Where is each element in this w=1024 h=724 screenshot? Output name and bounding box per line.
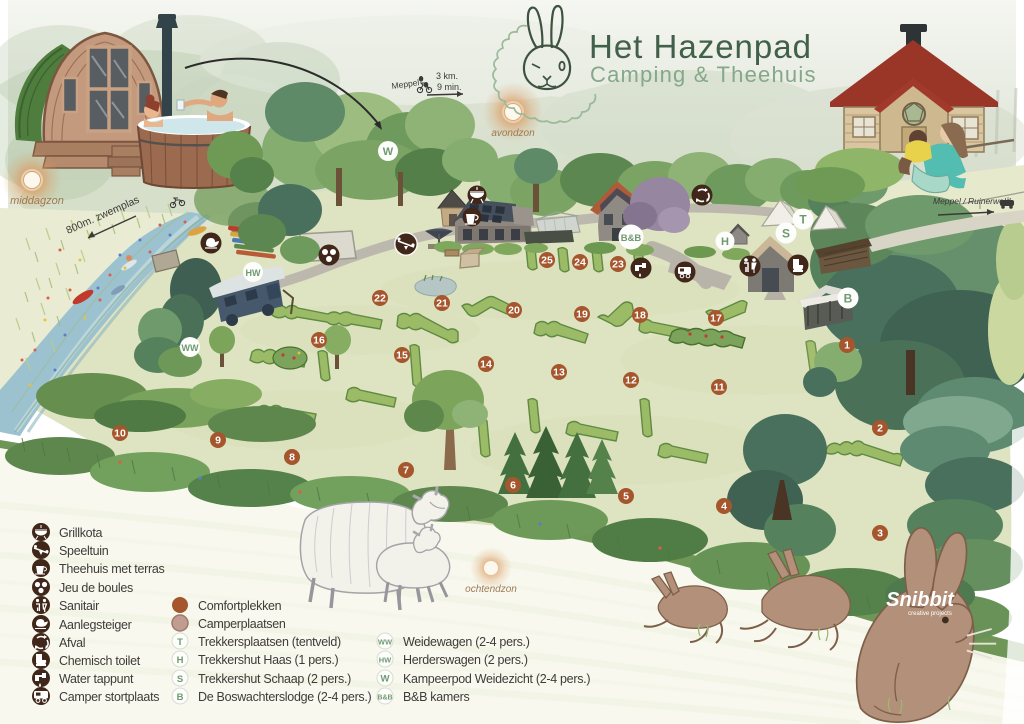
svg-text:17: 17 [710,313,722,325]
svg-text:12: 12 [625,375,637,387]
svg-text:9 min.: 9 min. [437,82,462,92]
svg-text:19: 19 [576,309,588,321]
svg-text:14: 14 [480,359,492,371]
svg-text:B: B [177,692,184,703]
svg-text:W: W [383,146,394,158]
svg-text:middagzon: middagzon [10,195,64,207]
svg-text:Trekkershut Schaap (2 pers.): Trekkershut Schaap (2 pers.) [198,672,351,686]
svg-text:21: 21 [436,298,448,310]
svg-text:8: 8 [289,452,295,464]
svg-text:18: 18 [634,310,646,322]
svg-text:2: 2 [877,423,883,435]
svg-text:6: 6 [510,480,516,492]
svg-text:4: 4 [721,501,727,513]
svg-text:Camper stortplaats: Camper stortplaats [59,690,159,704]
svg-text:avondzon: avondzon [491,128,535,139]
svg-text:HW: HW [246,268,261,278]
svg-text:20: 20 [508,305,520,317]
svg-text:13: 13 [553,367,565,379]
svg-text:WW: WW [378,638,393,647]
svg-text:10: 10 [114,428,126,440]
svg-text:Weidewagen (2-4 pers.): Weidewagen (2-4 pers.) [403,635,530,649]
svg-text:Sanitair: Sanitair [59,599,99,613]
svg-text:5: 5 [623,491,629,503]
svg-text:3 km.: 3 km. [436,71,458,81]
svg-text:Herderswagen (2 pers.): Herderswagen (2 pers.) [403,653,528,667]
svg-text:Trekkershut Haas (1 pers.): Trekkershut Haas (1 pers.) [198,653,339,667]
svg-text:T: T [177,637,183,648]
svg-text:B&B: B&B [377,695,392,702]
svg-text:Camperplaatsen: Camperplaatsen [198,617,286,631]
svg-text:Kampeerpod Weidezicht (2-4 per: Kampeerpod Weidezicht (2-4 pers.) [403,672,590,686]
svg-text:W: W [381,674,390,685]
svg-text:Snibbit: Snibbit [886,589,955,611]
svg-text:22: 22 [374,293,386,305]
svg-text:Afval: Afval [59,636,85,650]
svg-text:S: S [782,227,790,241]
svg-text:Trekkersplaatsen (tentveld): Trekkersplaatsen (tentveld) [198,635,341,649]
svg-text:S: S [177,674,183,685]
svg-text:H: H [721,236,729,248]
svg-text:3: 3 [877,528,883,540]
svg-text:B: B [844,292,853,306]
svg-text:ochtendzon: ochtendzon [465,584,517,595]
svg-text:11: 11 [713,382,724,394]
svg-text:7: 7 [403,465,409,477]
svg-text:B&B kamers: B&B kamers [403,690,470,704]
svg-text:16: 16 [313,335,325,347]
svg-text:Theehuis met terras: Theehuis met terras [59,562,165,576]
svg-text:WW: WW [182,343,199,353]
svg-text:Jeu de boules: Jeu de boules [59,581,133,595]
svg-text:15: 15 [396,350,408,362]
svg-text:Aanlegsteiger: Aanlegsteiger [59,618,132,632]
svg-text:Water tappunt: Water tappunt [59,672,134,686]
svg-text:Chemisch toilet: Chemisch toilet [59,654,141,668]
svg-text:H: H [177,655,184,666]
svg-text:B&B: B&B [621,233,642,244]
svg-text:24: 24 [574,257,586,269]
svg-text:Speeltuin: Speeltuin [59,544,109,558]
svg-text:25: 25 [541,255,553,267]
svg-text:Het Hazenpad: Het Hazenpad [589,28,812,65]
svg-text:Comfortplekken: Comfortplekken [198,599,282,613]
svg-text:23: 23 [612,259,624,271]
svg-text:HW: HW [379,656,392,665]
svg-text:1: 1 [844,340,850,352]
svg-text:creative projects: creative projects [908,611,952,617]
svg-text:T: T [799,213,807,227]
svg-text:Meppel / Ruinerwold: Meppel / Ruinerwold [933,196,1011,206]
svg-text:9: 9 [215,435,221,447]
svg-text:De Boswachterslodge (2-4 pers.: De Boswachterslodge (2-4 pers.) [198,690,372,704]
svg-text:Grillkota: Grillkota [59,526,102,540]
svg-text:Camping & Theehuis: Camping & Theehuis [590,62,817,87]
